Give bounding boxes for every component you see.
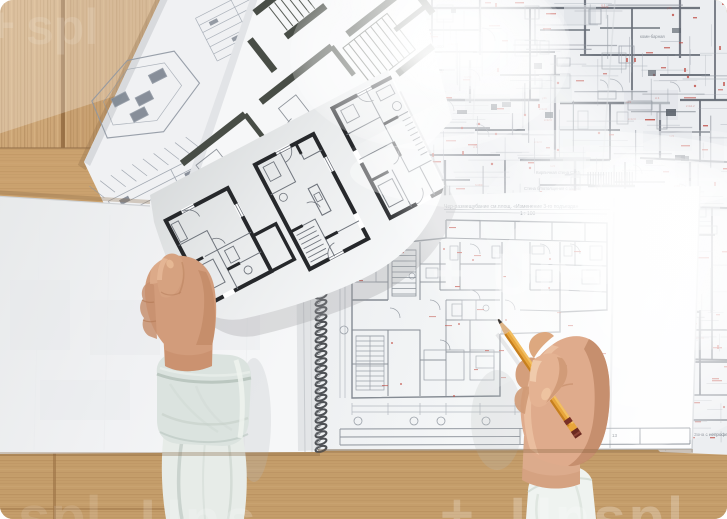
svg-text:+: + <box>440 482 474 519</box>
svg-text:Uns: Uns <box>140 488 259 519</box>
svg-text:spl: spl <box>18 485 102 519</box>
svg-text:комн-барная: комн-барная <box>640 34 665 39</box>
svg-text:Unspl: Unspl <box>492 242 668 307</box>
svg-text:ст.4: ст.4 <box>655 96 660 100</box>
svg-text:spl: spl <box>26 0 98 55</box>
svg-text:+: + <box>432 241 465 304</box>
svg-text:2.4х1.2: 2.4х1.2 <box>686 104 695 108</box>
svg-text:+: + <box>533 0 562 49</box>
svg-text:+: + <box>0 0 15 53</box>
svg-text:Unspl: Unspl <box>510 486 686 519</box>
svg-text:у.01: у.01 <box>667 6 672 10</box>
svg-text:ст.4: ст.4 <box>601 3 606 7</box>
